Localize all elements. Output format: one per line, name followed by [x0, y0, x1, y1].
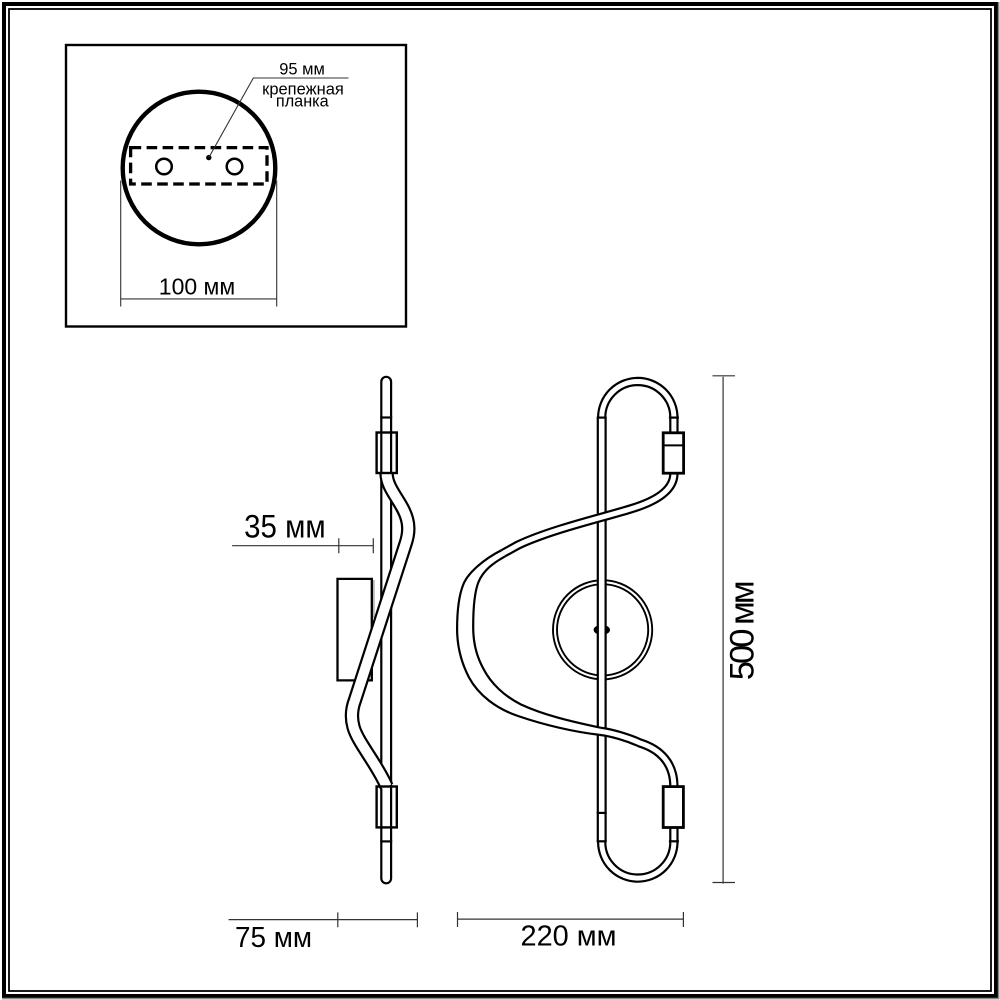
- svg-text:планка: планка: [276, 92, 330, 110]
- svg-text:75 мм: 75 мм: [235, 921, 312, 953]
- svg-text:95 мм: 95 мм: [279, 61, 325, 79]
- svg-text:500 мм: 500 мм: [724, 582, 762, 680]
- svg-text:100 мм: 100 мм: [159, 273, 235, 299]
- svg-text:35 мм: 35 мм: [244, 508, 326, 544]
- svg-text:220 мм: 220 мм: [521, 920, 617, 952]
